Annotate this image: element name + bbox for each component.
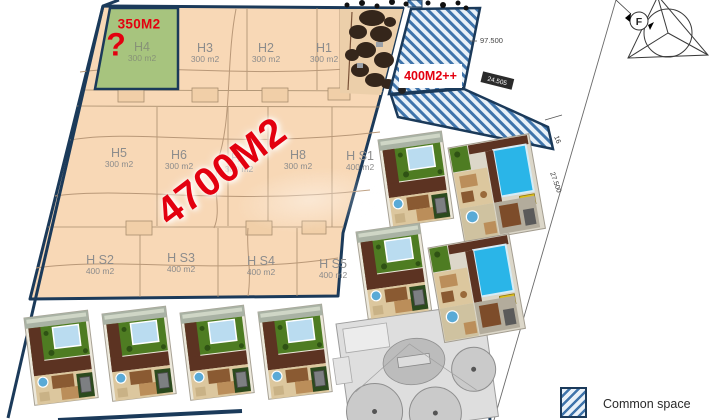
- plot-id: H S2: [86, 253, 114, 267]
- villa-floorplan: [24, 310, 98, 405]
- legend-common-space-label: Common space: [603, 387, 691, 411]
- legend-common-space-swatch: [560, 387, 587, 418]
- plot-label-h1: H1 300 m2: [310, 41, 338, 65]
- annotation-400m2-box: 400M2++: [399, 64, 462, 88]
- plot-area: 300 m2: [191, 55, 219, 65]
- plot-area: 400 m2: [247, 268, 275, 278]
- plot-label-h5: H5 300 m2: [105, 146, 133, 170]
- annotation-question-mark: ?: [106, 27, 126, 64]
- compass-label: F: [636, 16, 643, 28]
- plot-label-hs3: H S3 400 m2: [167, 251, 195, 275]
- legend: Common space: [560, 387, 691, 418]
- plot-id: H1: [310, 41, 338, 55]
- plot-label-h3: H3 300 m2: [191, 41, 219, 65]
- plot-id: H3: [191, 41, 219, 55]
- dimension-top: 97.500: [480, 36, 503, 45]
- annotation-400m2-text: 400M2++: [404, 69, 457, 83]
- villa-floorplan: [180, 305, 254, 400]
- plot-area: 400 m2: [346, 163, 374, 173]
- plot-id: H6: [165, 148, 193, 162]
- site-plan: 97.500 24.505 16 27.500 F: [0, 0, 720, 420]
- villa-floorplan: [378, 131, 454, 227]
- plot-area: 300 m2: [284, 162, 312, 172]
- plot-area: 300 m2: [128, 54, 156, 64]
- plot-area: 300 m2: [252, 55, 280, 65]
- villa-floorplan: [448, 134, 545, 243]
- dimension-strip: 16: [552, 135, 561, 145]
- plot-area: 400 m2: [86, 267, 114, 277]
- plot-id: H4: [128, 40, 156, 54]
- plot-id: H S4: [247, 254, 275, 268]
- hatch-stub-top: [408, 0, 422, 7]
- plot-area: 300 m2: [310, 55, 338, 65]
- plot-id: H S1: [346, 149, 374, 163]
- plot-area: 400 m2: [167, 265, 195, 275]
- plot-label-h4: H4 300 m2: [128, 40, 156, 64]
- plot-label-hs2: H S2 400 m2: [86, 253, 114, 277]
- plot-label-h8: H8 300 m2: [284, 148, 312, 172]
- plot-label-hs5: H S5 400 m2: [319, 257, 347, 281]
- plot-label-hs1: H S1 400 m2: [346, 149, 374, 173]
- villa-floorplan: [258, 304, 332, 399]
- compass-north-arrow: F: [616, 0, 708, 58]
- plot-id: H S3: [167, 251, 195, 265]
- plot-id: H5: [105, 146, 133, 160]
- plot-area: 400 m2: [319, 271, 347, 281]
- villa-floorplan: [428, 234, 525, 343]
- plot-area: 300 m2: [105, 160, 133, 170]
- villa-floorplan: [356, 223, 432, 319]
- plot-id: H2: [252, 41, 280, 55]
- plot-id: H S5: [319, 257, 347, 271]
- plot-label-h2: H2 300 m2: [252, 41, 280, 65]
- plot-label-hs4: H S4 400 m2: [247, 254, 275, 278]
- villa-floorplan: [102, 306, 176, 401]
- dimension-right: 27.500: [548, 171, 562, 194]
